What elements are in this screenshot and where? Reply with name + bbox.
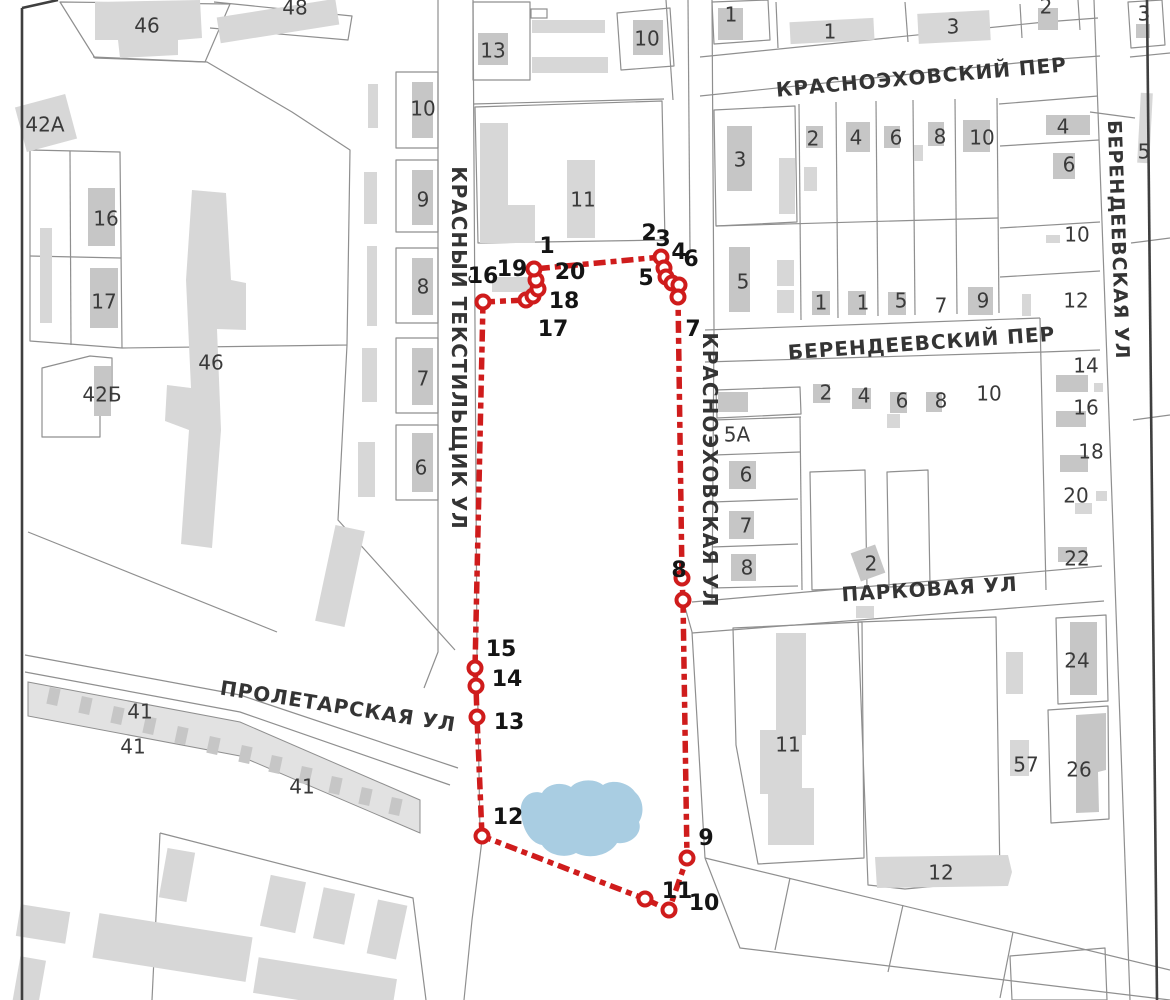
house-number: 9 xyxy=(417,188,430,212)
building-footprint xyxy=(253,957,397,1000)
house-number: 5А xyxy=(724,423,751,447)
map-canvas[interactable]: КРАСНОЭХОВСКИЙ ПЕРБЕРЕНДЕЕВСКИЙ ПЕРПАРКО… xyxy=(0,0,1170,1000)
parcel-line xyxy=(712,499,798,502)
building-footprint xyxy=(856,606,874,618)
house-number: 12 xyxy=(1063,289,1088,313)
parcel-line xyxy=(688,0,690,250)
boundary-vertex xyxy=(477,296,490,309)
parcel-line xyxy=(1078,0,1080,30)
house-number: 26 xyxy=(1066,758,1091,782)
parcel-line xyxy=(1010,948,1107,1000)
map-stage[interactable]: КРАСНОЭХОВСКИЙ ПЕРБЕРЕНДЕЕВСКИЙ ПЕРПАРКО… xyxy=(0,0,1170,1000)
parcel-line xyxy=(836,102,838,318)
street-label: КРАСНОЭХОВСКАЯ УЛ xyxy=(698,332,722,607)
parcel-line xyxy=(28,532,277,632)
building-footprint xyxy=(367,899,408,959)
parcel-line xyxy=(712,544,798,547)
house-number: 6 xyxy=(1063,153,1076,177)
parcel-line xyxy=(876,101,878,316)
house-number: 17 xyxy=(91,290,116,314)
parcel-line xyxy=(464,840,482,1000)
building-footprint xyxy=(804,167,817,191)
house-number: 8 xyxy=(741,556,754,580)
house-number: 8 xyxy=(417,275,430,299)
house-number: 41 xyxy=(289,775,314,799)
house-number: 10 xyxy=(969,126,994,150)
building-footprint xyxy=(887,414,900,428)
house-number: 2 xyxy=(820,381,833,405)
street-label: БЕРЕНДЕЕВСКИЙ ПЕР xyxy=(787,322,1056,365)
parcel-line xyxy=(776,2,778,48)
building-footprint xyxy=(362,348,377,402)
parcel-line xyxy=(913,100,915,315)
vertex-label: 11 xyxy=(662,879,693,904)
house-number: 20 xyxy=(1063,484,1088,508)
building-footprint xyxy=(1056,375,1088,392)
parcel-line xyxy=(799,104,801,320)
house-number: 16 xyxy=(1073,396,1098,420)
parcel-line xyxy=(775,878,790,950)
house-number: 2 xyxy=(807,127,820,151)
vertex-label: 7 xyxy=(685,317,700,342)
building-footprint xyxy=(16,904,70,943)
parcel-line xyxy=(152,833,160,1000)
building-footprint xyxy=(92,913,252,982)
building-footprint xyxy=(260,875,306,933)
parcel-line xyxy=(800,417,802,590)
boundary-vertex xyxy=(470,680,483,693)
house-number: 11 xyxy=(775,733,800,757)
house-number: 10 xyxy=(634,27,659,51)
house-number: 4 xyxy=(858,384,871,408)
house-number: 46 xyxy=(134,14,159,38)
house-number: 8 xyxy=(934,125,947,149)
vertex-label: 8 xyxy=(671,558,686,583)
building-footprint xyxy=(313,887,355,945)
vertex-label: 3 xyxy=(655,227,670,252)
building-footprint xyxy=(358,442,375,497)
house-number: 6 xyxy=(740,463,753,487)
house-number: 3 xyxy=(947,15,960,39)
parcel-line xyxy=(887,470,930,587)
parcel-line xyxy=(666,0,673,100)
house-number: 14 xyxy=(1073,354,1098,378)
parcel-line xyxy=(1000,271,1100,277)
vertex-label: 5 xyxy=(638,266,653,291)
building-footprint xyxy=(1022,294,1031,316)
parcel-line xyxy=(997,98,999,313)
parcel-line xyxy=(999,96,1098,104)
parcel-line xyxy=(712,586,798,588)
house-number: 4 xyxy=(850,126,863,150)
parcel-line xyxy=(1000,140,1099,146)
vertex-label: 9 xyxy=(698,826,713,851)
boundary-vertex xyxy=(639,893,652,906)
boundary-vertex xyxy=(528,263,541,276)
building-footprint xyxy=(1094,383,1103,392)
building-footprint xyxy=(777,260,794,286)
house-number: 1 xyxy=(824,20,837,44)
building-footprint xyxy=(368,84,378,128)
vertex-label: 1 xyxy=(539,234,554,259)
house-number: 41 xyxy=(127,700,152,724)
building-footprint xyxy=(480,123,535,243)
house-number: 12 xyxy=(928,861,953,885)
pond-layer xyxy=(521,780,643,856)
building-footprint xyxy=(217,0,340,43)
building-footprint xyxy=(768,788,814,845)
building-footprint xyxy=(40,228,52,323)
parcel-line xyxy=(888,905,903,972)
house-number: 7 xyxy=(935,294,948,318)
house-number: 3 xyxy=(734,148,747,172)
house-number: 10 xyxy=(1064,223,1089,247)
building-footprint xyxy=(531,9,547,18)
parcel-line xyxy=(955,99,957,314)
boundary-vertex xyxy=(469,662,482,675)
building-footprint xyxy=(776,633,806,735)
building-footprint xyxy=(367,246,377,326)
house-number: 48 xyxy=(282,0,307,20)
vertex-label: 10 xyxy=(689,891,720,916)
house-number: 41 xyxy=(120,735,145,759)
street-label: КРАСНЫЙ ТЕКСТИЛЬЩИК УЛ xyxy=(447,166,471,529)
pond xyxy=(521,780,643,856)
building-footprint xyxy=(914,145,923,161)
building-footprint xyxy=(1096,491,1107,501)
house-number: 57 xyxy=(1013,753,1038,777)
house-number: 11 xyxy=(570,188,595,212)
map-frame-line xyxy=(22,0,58,8)
building-footprint xyxy=(777,290,794,313)
house-number: 3 xyxy=(1138,2,1151,26)
vertex-label: 16 xyxy=(468,264,499,289)
house-number: 6 xyxy=(415,456,428,480)
boundary-vertex xyxy=(476,830,489,843)
building-footprint xyxy=(779,158,795,214)
house-number: 2 xyxy=(865,552,878,576)
house-number: 22 xyxy=(1064,547,1089,571)
street-label: КРАСНОЭХОВСКИЙ ПЕР xyxy=(775,52,1068,101)
house-number: 5 xyxy=(1138,140,1151,164)
boundary-vertex xyxy=(672,291,685,304)
vertex-label: 13 xyxy=(494,710,525,735)
house-number: 18 xyxy=(1078,440,1103,464)
house-number: 9 xyxy=(977,289,990,313)
building-footprint xyxy=(532,20,605,33)
house-number: 4 xyxy=(1057,115,1070,139)
vertex-label: 17 xyxy=(538,317,569,342)
parcel-line xyxy=(858,617,1000,889)
building-footprint xyxy=(364,172,377,224)
parcel-line xyxy=(1130,53,1170,57)
house-number: 6 xyxy=(896,389,909,413)
house-number: 42Б xyxy=(82,383,121,407)
house-number: 1 xyxy=(725,3,738,27)
vertex-label: 6 xyxy=(683,247,698,272)
house-number: 1 xyxy=(815,291,828,315)
parcel-line xyxy=(1090,112,1135,118)
building-footprint xyxy=(10,956,46,1000)
street-label: БЕРЕНДЕЕВСКАЯ УЛ xyxy=(1103,120,1133,360)
house-number: 46 xyxy=(198,351,223,375)
boundary-vertex xyxy=(663,904,676,917)
house-number: 24 xyxy=(1064,649,1089,673)
house-number: 10 xyxy=(976,382,1001,406)
house-number: 2 xyxy=(1040,0,1053,19)
building-footprint xyxy=(1046,235,1060,243)
building-footprint xyxy=(1006,652,1023,694)
vertex-label: 15 xyxy=(486,637,517,662)
boundary-vertex xyxy=(677,594,690,607)
building-footprint xyxy=(159,848,195,902)
parcel-line xyxy=(1020,4,1022,38)
house-number: 16 xyxy=(93,207,118,231)
vertex-label: 12 xyxy=(493,805,524,830)
boundary-vertex xyxy=(471,711,484,724)
house-number: 6 xyxy=(890,126,903,150)
parcel-line xyxy=(1040,318,1046,590)
house-number: 10 xyxy=(410,97,435,121)
house-number: 7 xyxy=(417,367,430,391)
house-number: 1 xyxy=(857,291,870,315)
parcel-line xyxy=(692,601,1104,633)
parcel-line xyxy=(70,151,71,345)
building-footprint xyxy=(315,525,365,627)
parcel-line xyxy=(714,452,800,455)
vertex-label: 19 xyxy=(497,257,528,282)
vertex-label: 14 xyxy=(492,667,523,692)
house-number: 5 xyxy=(737,270,750,294)
house-number: 8 xyxy=(935,389,948,413)
boundary-vertex xyxy=(681,852,694,865)
house-number: 5 xyxy=(895,289,908,313)
house-number: 13 xyxy=(480,39,505,63)
house-number: 42А xyxy=(25,113,64,137)
vertex-label: 20 xyxy=(555,260,586,285)
vertex-label: 18 xyxy=(549,289,580,314)
building-footprint xyxy=(532,57,608,73)
house-number: 7 xyxy=(740,514,753,538)
